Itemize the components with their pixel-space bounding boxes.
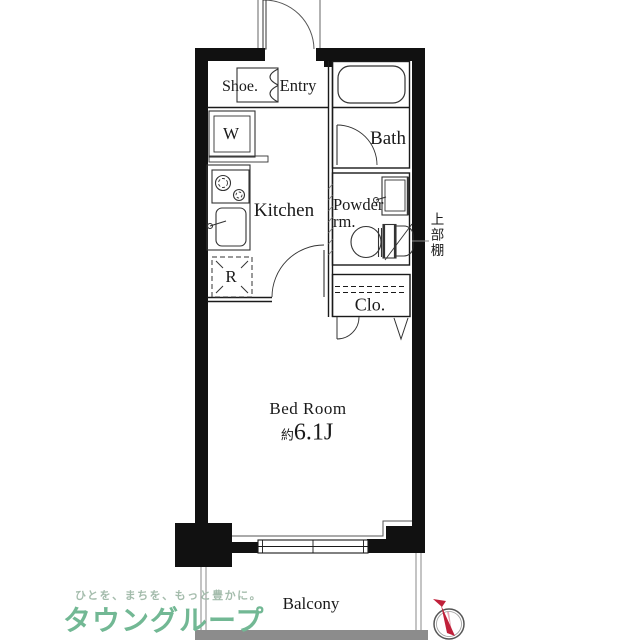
label-shoe-cabinet: Shoe.	[222, 78, 258, 96]
label-bedroom: Bed Room	[269, 399, 346, 419]
label-balcony: Balcony	[283, 594, 340, 614]
label-entry: Entry	[280, 76, 317, 96]
compass-icon	[433, 599, 464, 639]
label-area-prefix: 約	[281, 428, 294, 443]
logo-badge-text: TOWN GROUP	[5, 628, 58, 635]
label-washer: W	[223, 124, 239, 144]
bedroom-window	[258, 540, 368, 553]
label-closet: Clo.	[355, 295, 386, 316]
label-area-value: 6.1J	[294, 420, 333, 446]
label-upper-shelf: 上部棚	[429, 212, 443, 259]
floor-plan-drawing: TOWN GROUP	[0, 0, 640, 640]
label-kitchen: Kitchen	[254, 200, 314, 222]
bathtub	[338, 66, 405, 103]
kitchen-sink	[216, 208, 246, 246]
label-bath: Bath	[370, 128, 406, 150]
floorplan-page: TOWN GROUP Shoe. Entry W Kitchen Bath Po…	[0, 0, 640, 640]
label-powder-room: Powder rm.	[333, 197, 383, 231]
town-group-logo: TOWN GROUP	[5, 589, 58, 635]
label-bedroom-area: 約6.1J	[281, 420, 333, 447]
brand-name: タウングループ	[63, 599, 264, 639]
entry-door	[258, 0, 320, 49]
closet-doors	[337, 317, 408, 339]
label-powder-line2: rm.	[333, 214, 383, 231]
outer-walls	[175, 48, 425, 567]
bedroom-door	[272, 245, 324, 297]
kitchen-counter	[207, 165, 250, 250]
label-refrigerator: R	[225, 267, 236, 287]
tree-icon	[12, 589, 52, 624]
